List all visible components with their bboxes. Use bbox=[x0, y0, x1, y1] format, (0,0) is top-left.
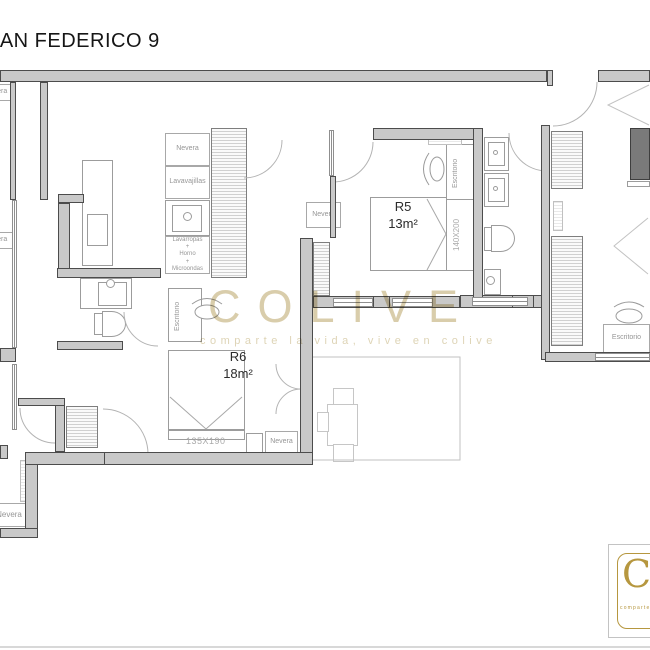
folding-wardrobe-doors bbox=[608, 85, 649, 125]
wall bbox=[10, 82, 16, 200]
r6-bed-size-label: 135X190 bbox=[186, 436, 226, 446]
fixture-knob bbox=[486, 276, 495, 285]
toilet-bowl bbox=[491, 225, 515, 252]
right-room-desk: Escritorio bbox=[603, 324, 650, 353]
wall bbox=[58, 203, 70, 277]
wall bbox=[0, 70, 547, 82]
wall bbox=[300, 238, 313, 464]
wall bbox=[18, 398, 65, 406]
room-r6-label: R6 18m² bbox=[206, 349, 270, 383]
terrace-furniture bbox=[327, 404, 358, 446]
wardrobe-door-arc bbox=[276, 389, 301, 414]
wall bbox=[330, 176, 336, 238]
desk-chair bbox=[430, 157, 444, 181]
desk-chair bbox=[616, 309, 642, 323]
wardrobe-door-arc bbox=[276, 364, 301, 389]
closet-shelves bbox=[66, 406, 98, 448]
dishwasher-label: Lavavajillas bbox=[169, 178, 205, 186]
window bbox=[329, 130, 334, 176]
fixture-knob bbox=[106, 279, 115, 288]
window bbox=[12, 364, 17, 430]
fridge-box: Nevera bbox=[165, 133, 210, 166]
room-r5-name: R5 bbox=[371, 199, 435, 216]
r5-bed-size-label: 140X200 bbox=[452, 208, 461, 262]
furniture-outline bbox=[627, 181, 650, 187]
door-arc bbox=[103, 409, 148, 454]
closet-shelves bbox=[551, 236, 583, 346]
edge-fridge-label: Nevera bbox=[0, 88, 7, 96]
plan-title: SAN FEDERICO 9 bbox=[0, 30, 160, 53]
wall bbox=[40, 82, 48, 200]
room-r5-label: R5 13m² bbox=[371, 199, 435, 233]
colive-watermark: COLIVE bbox=[208, 281, 475, 333]
room-r6-area: 18m² bbox=[206, 366, 270, 383]
appliance-stack-label: Lavarropas + Horno + Microondas bbox=[172, 237, 203, 273]
edge-fridge-label: Nevera bbox=[0, 510, 22, 520]
wall bbox=[57, 268, 161, 278]
terrace-furniture bbox=[317, 412, 329, 432]
cabinet-dark bbox=[630, 128, 650, 180]
wall bbox=[58, 194, 84, 203]
wall bbox=[547, 70, 553, 86]
wall bbox=[473, 128, 483, 302]
folding-wardrobe-doors bbox=[614, 218, 648, 274]
wall bbox=[55, 400, 65, 452]
furniture-outline bbox=[246, 433, 263, 454]
desk-chair-back bbox=[614, 302, 644, 307]
desk-chair-back bbox=[424, 153, 430, 185]
r6-fridge-box: Nevera bbox=[265, 431, 298, 454]
door-arc bbox=[333, 142, 373, 182]
wall bbox=[373, 128, 480, 140]
edge-fridge-label: Nevera bbox=[0, 236, 7, 244]
door-arc bbox=[20, 408, 55, 443]
terrace-furniture bbox=[333, 444, 354, 462]
window bbox=[12, 200, 17, 348]
room-r6-name: R6 bbox=[206, 349, 270, 366]
colive-logo-initial: C bbox=[622, 555, 650, 593]
wall bbox=[598, 70, 650, 82]
furniture-outline bbox=[446, 144, 474, 200]
door-arc bbox=[244, 140, 282, 178]
entrance-door-arc bbox=[553, 82, 597, 126]
closet-shelves bbox=[551, 131, 583, 189]
furniture-outline bbox=[82, 160, 113, 266]
room-r5-area: 13m² bbox=[371, 216, 435, 233]
toilet-bowl bbox=[102, 311, 126, 337]
colive-logo: C comparte la vida bbox=[608, 544, 650, 638]
fridge-label: Nevera bbox=[176, 145, 199, 153]
small-label bbox=[553, 201, 563, 231]
door-arc bbox=[124, 312, 158, 346]
closet-shelves bbox=[211, 128, 247, 278]
window bbox=[595, 353, 650, 361]
window bbox=[472, 297, 528, 306]
r5-desk-label: Escritorio bbox=[452, 148, 459, 198]
appliance-stack-box: Lavarropas + Horno + Microondas bbox=[165, 236, 210, 274]
wall bbox=[57, 341, 123, 350]
wall bbox=[0, 528, 38, 538]
wall bbox=[541, 125, 550, 360]
fixture-knob bbox=[183, 212, 192, 221]
wall bbox=[0, 348, 16, 362]
fixture-knob bbox=[493, 186, 498, 191]
r6-fridge-label: Nevera bbox=[270, 438, 293, 446]
fixture-knob bbox=[493, 150, 498, 155]
wall bbox=[25, 452, 105, 465]
page-footer-rule bbox=[0, 646, 650, 648]
furniture-outline bbox=[87, 214, 108, 246]
wall bbox=[0, 445, 8, 459]
dishwasher-box: Lavavajillas bbox=[165, 166, 210, 199]
r6-desk-label: Escritorio bbox=[174, 292, 181, 340]
wall bbox=[103, 452, 313, 465]
right-room-desk-label: Escritorio bbox=[612, 334, 641, 342]
colive-logo-tagline: comparte la vida bbox=[620, 605, 650, 611]
colive-watermark-tagline: comparte la vida, vive en colive bbox=[200, 335, 497, 347]
